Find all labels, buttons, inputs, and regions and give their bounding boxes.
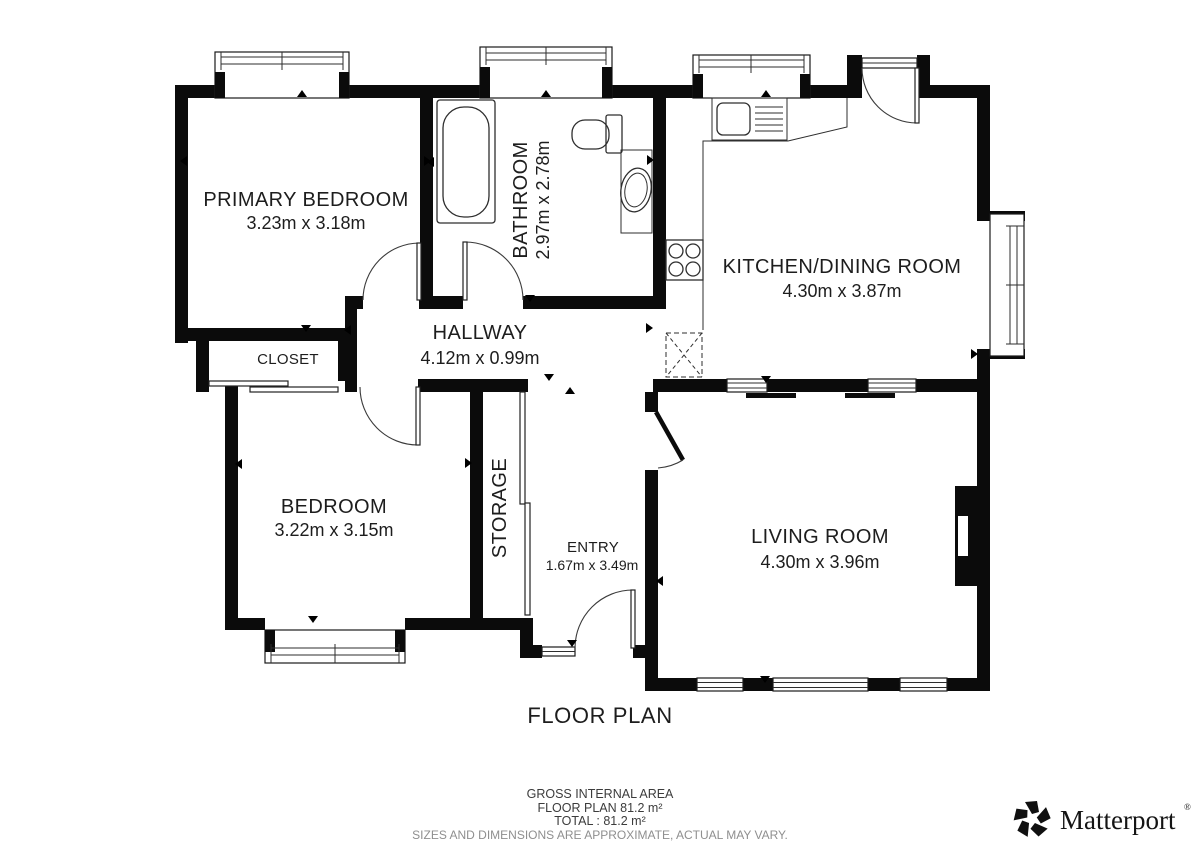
- room-label-kitchen: KITCHEN/DINING ROOM: [723, 256, 962, 278]
- storage-sliding-doors: [520, 392, 530, 615]
- room-label-bedroom: BEDROOM: [281, 496, 387, 518]
- room-dims-hallway: 4.12m x 0.99m: [420, 348, 539, 368]
- radiator-bar: [746, 393, 796, 398]
- walls: [175, 55, 1025, 691]
- room-label-closet: CLOSET: [257, 351, 319, 368]
- captions: FLOOR PLAN GROSS INTERNAL AREA FLOOR PLA…: [412, 703, 788, 842]
- room-label-primary-bedroom: PRIMARY BEDROOM: [203, 189, 408, 211]
- door-primary-bedroom: [363, 243, 421, 300]
- room-label-entry: ENTRY: [567, 539, 619, 556]
- door-bedroom: [360, 387, 420, 445]
- room-dims-bedroom: 3.22m x 3.15m: [274, 520, 393, 540]
- window-kitchen-right: [990, 214, 1024, 356]
- window-living-1: [697, 678, 743, 691]
- registered-trademark-icon: ®: [1184, 802, 1191, 812]
- radiator-bar: [845, 393, 895, 398]
- window-bedroom: [265, 630, 405, 663]
- window-living-3: [900, 678, 947, 691]
- windows: [215, 47, 1024, 691]
- window-kitchen-top: [693, 55, 810, 98]
- room-dims-primary-bedroom: 3.23m x 3.18m: [246, 213, 365, 233]
- footer-total-area: TOTAL : 81.2 m²: [554, 814, 645, 828]
- room-label-living-room: LIVING ROOM: [751, 526, 889, 548]
- matterport-wordmark: Matterport: [1060, 805, 1176, 835]
- footer-disclaimer: SIZES AND DIMENSIONS ARE APPROXIMATE, AC…: [412, 828, 788, 842]
- room-label-hallway: HALLWAY: [433, 322, 528, 344]
- floor-plan-drawing: PRIMARY BEDROOM 3.23m x 3.18m BATHROOM 2…: [0, 0, 1200, 849]
- plan-title: FLOOR PLAN: [527, 703, 672, 728]
- door-kitchen: [862, 58, 919, 123]
- room-label-storage: STORAGE: [489, 458, 511, 558]
- window-primary-bedroom: [215, 52, 349, 98]
- fireplace-recess: [958, 516, 968, 556]
- window-kitchen-living-2: [868, 379, 916, 392]
- appliance-dashed-icon: [666, 333, 702, 377]
- door-entry-front: [542, 590, 635, 656]
- toilet-icon: [572, 115, 622, 153]
- room-dims-living-room: 4.30m x 3.96m: [760, 552, 879, 572]
- window-kitchen-living-1: [727, 379, 767, 392]
- kitchen-sink-icon: [712, 98, 787, 140]
- window-living-2: [773, 678, 868, 691]
- door-living-room: [656, 412, 683, 468]
- room-labels: PRIMARY BEDROOM 3.23m x 3.18m BATHROOM 2…: [203, 140, 961, 573]
- matterport-pinwheel-icon: [1013, 801, 1052, 838]
- floor-plan-page: PRIMARY BEDROOM 3.23m x 3.18m BATHROOM 2…: [0, 0, 1200, 849]
- room-dims-entry: 1.67m x 3.49m: [546, 557, 639, 573]
- room-label-bathroom: BATHROOM: [510, 141, 532, 258]
- matterport-logo: Matterport ®: [1013, 801, 1191, 838]
- footer-floor-plan-area: FLOOR PLAN 81.2 m²: [537, 801, 662, 815]
- room-dims-bathroom: 2.97m x 2.78m: [533, 140, 553, 259]
- bathtub-icon: [437, 100, 495, 223]
- room-dims-kitchen: 4.30m x 3.87m: [782, 281, 901, 301]
- footer-gross-internal-area: GROSS INTERNAL AREA: [527, 787, 674, 801]
- stove-icon: [666, 240, 703, 280]
